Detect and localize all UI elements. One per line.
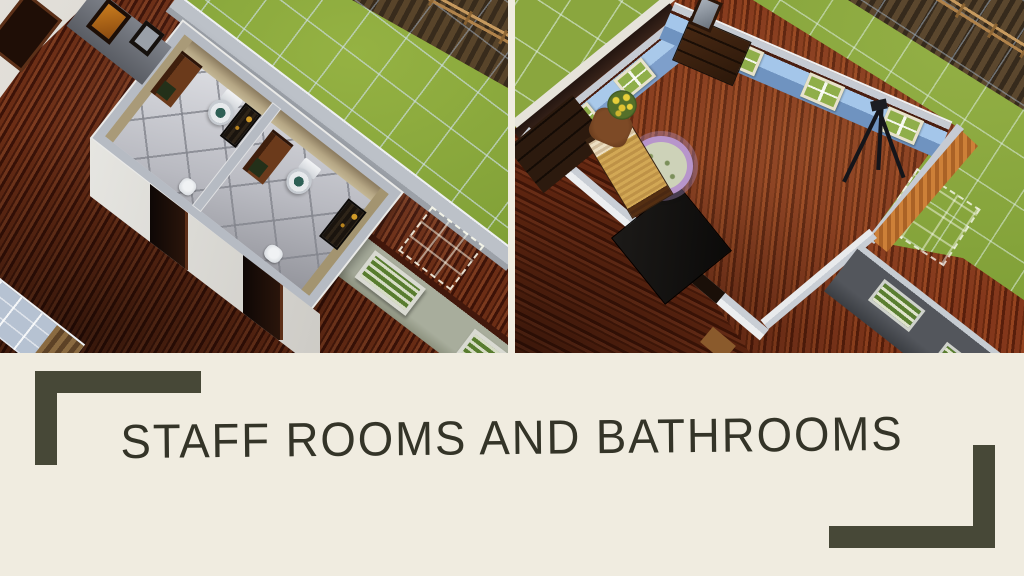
tripod-leg [842,109,881,183]
panel-divider [508,0,515,353]
sink [176,175,198,197]
tripod-head [870,98,888,111]
left-screenshot [0,0,508,353]
caption-band: STAFF ROOMS AND BATHROOMS [0,353,1024,576]
camera-tripod [845,104,915,200]
flower-pot [607,90,637,120]
louver-window [456,329,508,353]
toilet [280,155,324,201]
screenshot-strip [0,0,1024,353]
slide-title: STAFF ROOMS AND BATHROOMS [25,408,998,471]
presentation-slide: STAFF ROOMS AND BATHROOMS [0,0,1024,576]
sink [261,242,285,266]
louver-window [868,279,926,332]
louver-window [932,342,985,353]
right-screenshot [515,0,1024,353]
